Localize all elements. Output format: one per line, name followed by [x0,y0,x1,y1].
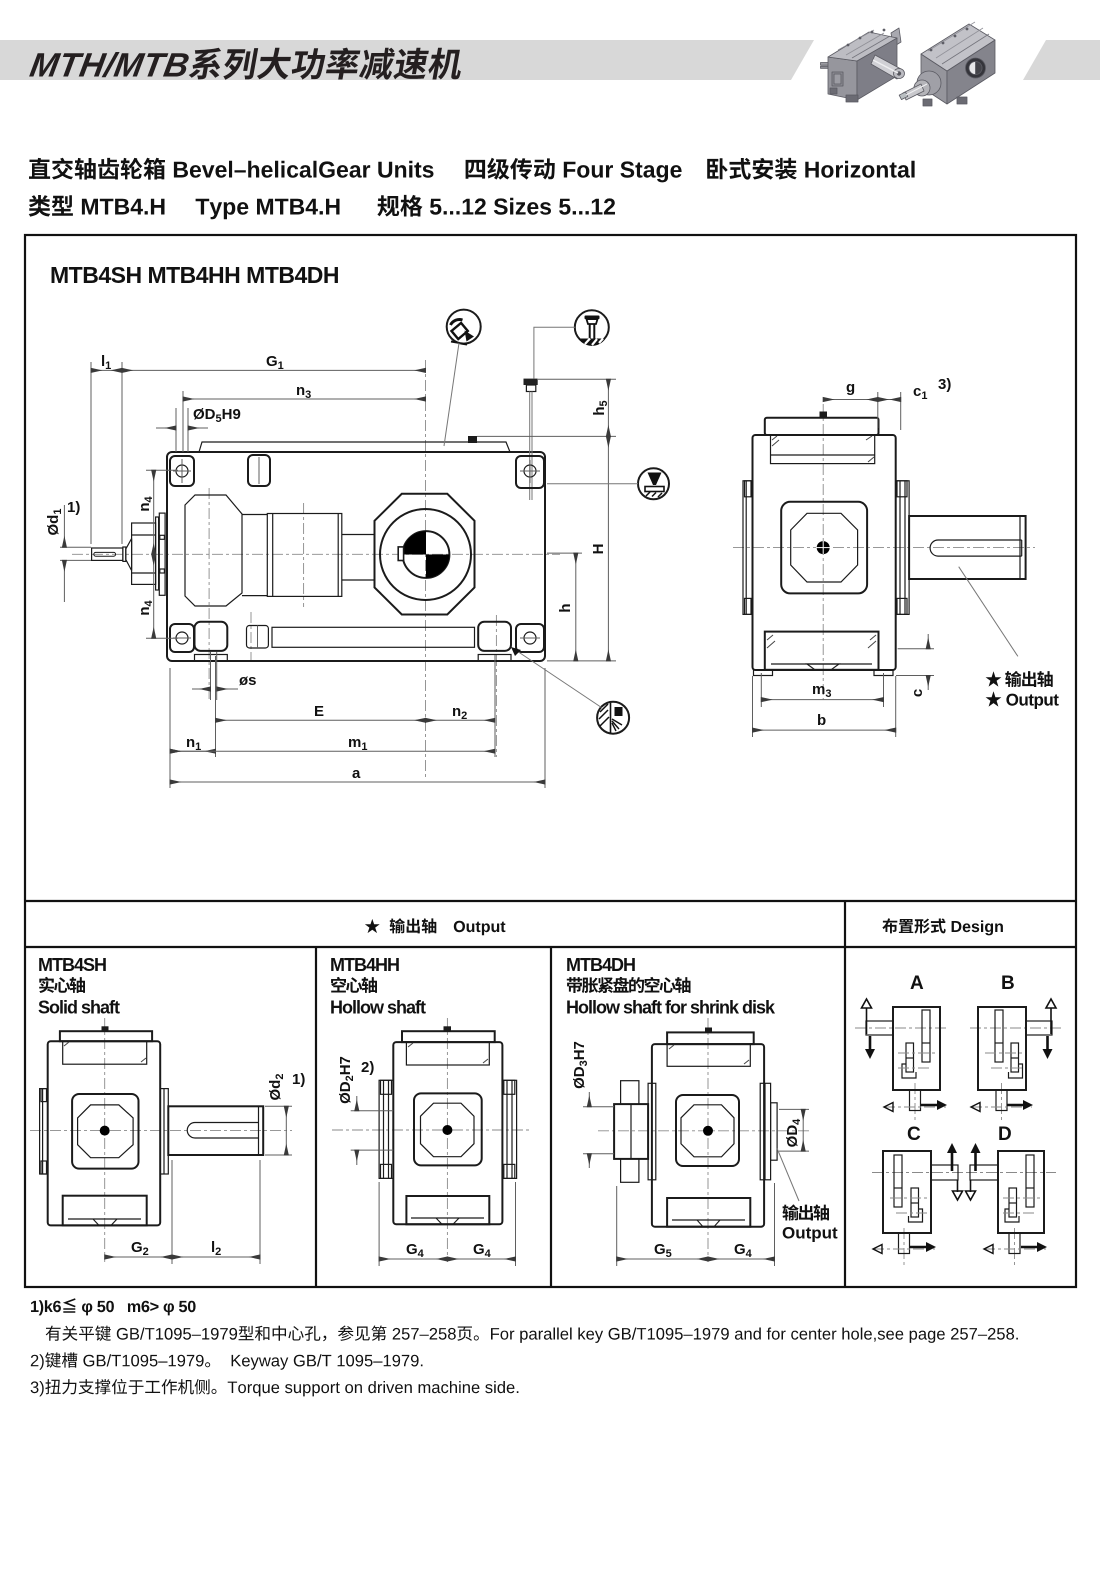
svg-text:Ød1: Ød1 [45,509,64,536]
svg-text:c1: c1 [913,383,927,402]
svg-text:MTB4DH: MTB4DH [566,955,635,975]
svg-text:ØD3H7: ØD3H7 [571,1041,590,1089]
svg-text:Output: Output [782,1224,838,1243]
svg-text:n4: n4 [136,599,155,615]
svg-text:Solid shaft: Solid shaft [38,998,120,1018]
svg-text:g: g [846,379,855,396]
svg-text:l2: l2 [211,1239,221,1258]
svg-text:Hollow shaft for shrink disk: Hollow shaft for shrink disk [566,998,776,1018]
svg-text:Hollow shaft: Hollow shaft [330,998,426,1018]
svg-text:B: B [1001,973,1015,994]
svg-text:MTB4HH: MTB4HH [330,955,399,975]
svg-text:øs: øs [239,672,257,689]
svg-text:ØD4: ØD4 [784,1118,803,1148]
svg-text:a: a [352,765,361,782]
svg-text:3): 3) [938,376,951,393]
svg-text:n2: n2 [452,703,467,722]
svg-text:G5: G5 [654,1241,672,1260]
svg-text:1): 1) [67,499,80,516]
svg-text:MTB4SH: MTB4SH [38,955,106,975]
svg-text:b: b [817,712,826,729]
svg-text:n3: n3 [296,382,311,401]
svg-text:h: h [557,603,574,612]
svg-text:c: c [909,689,926,697]
svg-text:h5: h5 [591,400,610,415]
svg-text:G1: G1 [266,353,284,372]
svg-text:1): 1) [292,1071,305,1088]
svg-text:n4: n4 [136,495,155,511]
svg-text:m1: m1 [348,734,367,753]
svg-text:l1: l1 [101,353,111,372]
svg-text:H: H [590,544,607,555]
svg-text:ØD5H9: ØD5H9 [193,406,241,425]
svg-text:Ød2: Ød2 [267,1074,286,1101]
svg-text:E: E [314,703,324,720]
svg-text:ØD2H7: ØD2H7 [337,1056,356,1104]
svg-text:2): 2) [361,1059,374,1076]
svg-text:G4: G4 [406,1241,425,1260]
svg-text:G2: G2 [131,1239,149,1258]
svg-text:G4: G4 [473,1241,492,1260]
svg-text:A: A [910,973,924,994]
svg-text:MTB4SH MTB4HH MTB4DH: MTB4SH MTB4HH MTB4DH [50,262,339,288]
svg-text:D: D [998,1124,1012,1145]
svg-text:n1: n1 [186,734,201,753]
svg-text:C: C [907,1124,921,1145]
svg-text:G4: G4 [734,1241,753,1260]
svg-text:m3: m3 [812,681,831,700]
